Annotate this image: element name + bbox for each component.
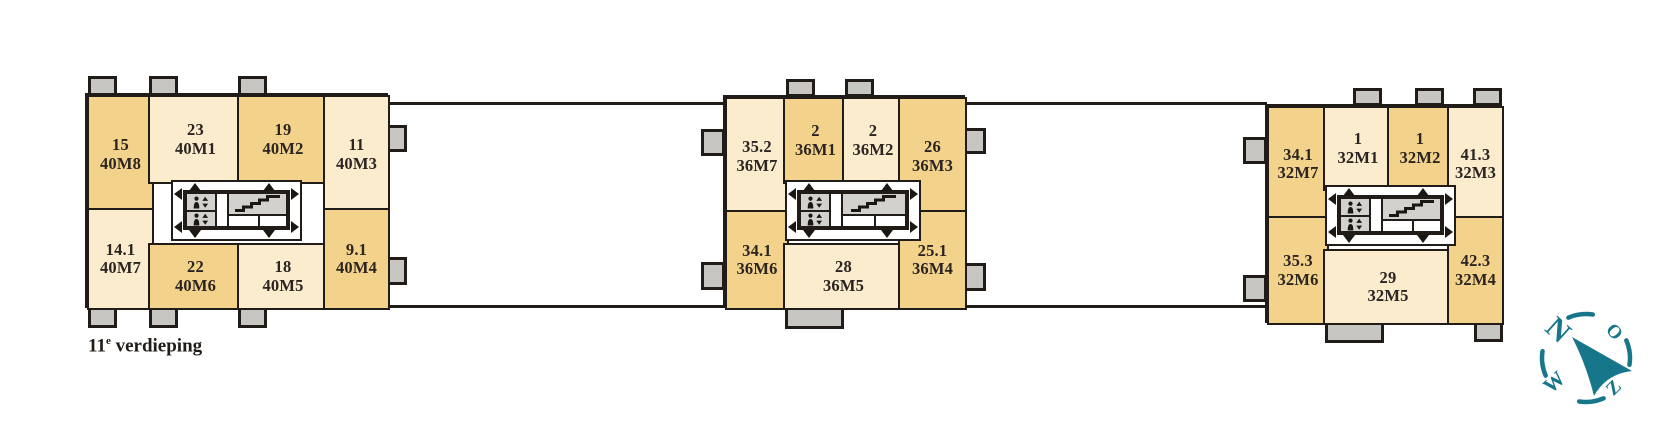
entrance-arrow-icon	[263, 183, 275, 191]
unit-32M2[interactable]: 1 32M2	[1387, 106, 1453, 191]
unit-code: 32M3	[1455, 164, 1496, 182]
entrance-arrow-icon	[174, 188, 182, 200]
entrance-arrow-icon	[910, 188, 918, 200]
unit-40M2[interactable]: 19 40M2	[237, 95, 329, 184]
unit-40M5[interactable]: 18 40M5	[237, 243, 329, 310]
unit-code: 32M2	[1399, 149, 1440, 167]
entrance-arrow-icon	[189, 230, 201, 238]
entrance-arrow-icon	[1328, 226, 1336, 238]
entrance-arrow-icon	[1343, 188, 1355, 196]
unit-36M6[interactable]: 34.1 36M6	[725, 210, 789, 310]
building-block-32: 34.1 32M7 1 32M1 1 32M2 41.3 32M3 35.3 3…	[1265, 104, 1502, 323]
compass-east-label: O	[1601, 319, 1626, 344]
elevator-icon	[1339, 197, 1371, 217]
unit-36M7[interactable]: 35.2 36M7	[725, 97, 789, 216]
unit-code: 40M6	[175, 277, 216, 295]
unit-code: 36M2	[852, 141, 893, 159]
balcony-tab	[1243, 275, 1267, 302]
unit-32M5[interactable]: 29 32M5	[1323, 249, 1453, 325]
unit-area: 29	[1380, 269, 1397, 287]
unit-area: 28	[835, 258, 852, 276]
unit-code: 32M4	[1455, 271, 1496, 289]
unit-code: 40M4	[336, 259, 377, 277]
unit-area: 34.1	[1283, 146, 1313, 164]
core-room	[1381, 219, 1414, 233]
unit-area: 1	[1354, 130, 1362, 148]
unit-32M6[interactable]: 35.3 32M6	[1267, 216, 1329, 325]
unit-area: 35.3	[1283, 252, 1313, 270]
unit-code: 40M8	[100, 155, 141, 173]
unit-area: 15	[112, 136, 129, 154]
unit-code: 36M3	[912, 157, 953, 175]
entrance-arrow-icon	[1445, 226, 1453, 238]
unit-code: 36M7	[736, 157, 777, 175]
entrance-arrow-icon	[1417, 188, 1429, 196]
unit-40M8[interactable]: 15 40M8	[87, 95, 154, 214]
unit-area: 34.1	[742, 242, 772, 260]
unit-area: 23	[187, 121, 204, 139]
entrance-arrow-icon	[189, 183, 201, 191]
entrance-arrow-icon	[291, 188, 299, 200]
unit-area: 41.3	[1461, 146, 1491, 164]
core-room	[258, 214, 288, 228]
entrance-arrow-icon	[174, 221, 182, 233]
unit-32M7[interactable]: 34.1 32M7	[1267, 106, 1329, 222]
unit-40M4[interactable]: 9.1 40M4	[323, 208, 390, 310]
entrance-arrow-icon	[803, 230, 815, 238]
core-room	[874, 214, 907, 228]
building-block-36: 35.2 36M7 2 36M1 2 36M2 26 36M3 34.1 36M…	[723, 95, 965, 308]
corridor-line	[963, 102, 1267, 105]
stairs-icon	[227, 192, 288, 216]
unit-36M5[interactable]: 28 36M5	[783, 243, 904, 310]
floor-plan: 15 40M8 23 40M1 19 40M2 11 40M3 14.1 40M…	[0, 0, 1680, 440]
unit-code: 40M1	[175, 140, 216, 158]
entrance-arrow-icon	[788, 188, 796, 200]
unit-area: 2	[869, 122, 877, 140]
entrance-arrow-icon	[803, 183, 815, 191]
unit-32M1[interactable]: 1 32M1	[1323, 106, 1393, 191]
unit-code: 32M1	[1337, 149, 1378, 167]
unit-code: 36M1	[795, 141, 836, 159]
circulation-core	[785, 180, 921, 241]
unit-code: 32M7	[1277, 164, 1318, 182]
unit-area: 19	[275, 121, 292, 139]
balcony-tab	[701, 129, 725, 156]
entrance-arrow-icon	[1343, 235, 1355, 243]
unit-area: 22	[187, 258, 204, 276]
unit-code: 40M7	[100, 259, 141, 277]
unit-36M1[interactable]: 2 36M1	[783, 97, 848, 184]
entrance-arrow-icon	[263, 230, 275, 238]
entrance-arrow-icon	[881, 230, 893, 238]
unit-40M7[interactable]: 14.1 40M7	[87, 208, 154, 310]
unit-code: 40M3	[336, 155, 377, 173]
entrance-arrow-icon	[881, 183, 893, 191]
unit-area: 42.3	[1461, 252, 1491, 270]
unit-area: 18	[275, 258, 292, 276]
elevator-icon	[799, 210, 831, 228]
unit-code: 36M5	[823, 277, 864, 295]
unit-area: 26	[924, 138, 941, 156]
stairs-icon	[841, 192, 907, 216]
entrance-arrow-icon	[910, 221, 918, 233]
unit-area: 25.1	[918, 242, 948, 260]
corridor-line	[386, 305, 725, 308]
entrance-arrow-icon	[1445, 193, 1453, 205]
floor-label: 11e verdieping	[88, 335, 202, 357]
unit-area: 2	[811, 122, 819, 140]
elevator-icon	[185, 210, 217, 228]
corridor-line	[386, 102, 725, 105]
unit-code: 32M5	[1367, 287, 1408, 305]
unit-40M1[interactable]: 23 40M1	[148, 95, 243, 184]
elevator-icon	[185, 192, 217, 212]
unit-area: 1	[1416, 130, 1424, 148]
unit-code: 40M5	[262, 277, 303, 295]
circulation-core	[1325, 185, 1456, 246]
unit-area: 11	[349, 136, 365, 154]
unit-code: 36M6	[736, 260, 777, 278]
compass-needle	[1572, 337, 1632, 396]
elevator-icon	[799, 192, 831, 212]
unit-area: 35.2	[742, 138, 772, 156]
balcony-tab	[701, 262, 725, 290]
unit-area: 9.1	[346, 241, 367, 259]
unit-area: 14.1	[106, 241, 136, 259]
core-room	[1412, 219, 1442, 233]
unit-code: 36M4	[912, 260, 953, 278]
building-block-40: 15 40M8 23 40M1 19 40M2 11 40M3 14.1 40M…	[85, 93, 388, 308]
balcony-tab	[1243, 137, 1267, 164]
entrance-arrow-icon	[788, 221, 796, 233]
unit-code: 32M6	[1277, 271, 1318, 289]
entrance-arrow-icon	[1417, 235, 1429, 243]
unit-40M3[interactable]: 11 40M3	[323, 95, 390, 214]
circulation-core	[171, 180, 302, 241]
unit-code: 40M2	[262, 140, 303, 158]
unit-40M6[interactable]: 22 40M6	[148, 243, 243, 310]
compass-icon: N O Z W	[1530, 300, 1650, 415]
core-room	[227, 214, 260, 228]
elevator-icon	[1339, 215, 1371, 233]
unit-36M2[interactable]: 2 36M2	[842, 97, 904, 184]
entrance-arrow-icon	[1328, 193, 1336, 205]
core-room	[841, 214, 876, 228]
entrance-arrow-icon	[291, 221, 299, 233]
stairs-icon	[1381, 197, 1442, 221]
corridor-line	[963, 305, 1267, 308]
